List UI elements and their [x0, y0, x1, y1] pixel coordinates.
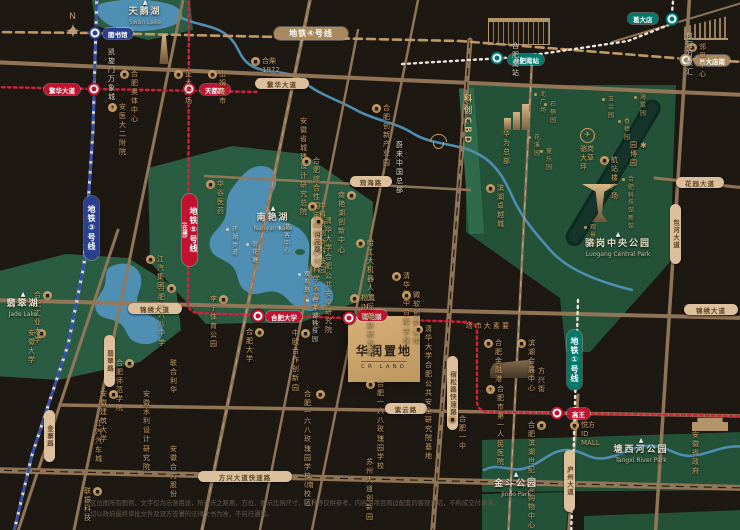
- poi-label: ▪山姆超市: [208, 70, 226, 106]
- poi-text: 清华大学 合肥公共安全研究院: [325, 217, 332, 335]
- location-map: 华润置地 CR LAND N ✦ 科创CBD 繁华大道观海路锦绣大道锦绣大道紫云…: [0, 0, 740, 530]
- poi-icon: ▪: [486, 184, 495, 193]
- poi-label: 安徽省政府: [692, 431, 699, 476]
- poi-icon: ▪: [109, 390, 118, 399]
- poi-icon: ▪: [414, 325, 423, 334]
- poi-text: 山姆超市: [219, 70, 226, 106]
- poi-icon: ▪: [392, 272, 401, 281]
- poi-icon: +: [108, 103, 117, 112]
- metro-line-badge: 地铁③号线: [84, 196, 99, 260]
- station-name-badge: 繁华大道: [44, 84, 80, 95]
- poi-label: 华为总部: [503, 130, 510, 166]
- park-name: ▲翡翠湖Jade Lake: [0, 292, 58, 318]
- poi-text: 合肥奥体中心: [131, 70, 138, 125]
- poi-text: 梅冲湖科技园: [312, 297, 318, 344]
- poi-text: 合肥南站: [512, 42, 519, 78]
- crland-latin: CR LAND: [361, 361, 407, 370]
- poi-icon: ✈: [580, 128, 595, 143]
- poi-icon: ▪: [570, 421, 579, 430]
- poi-label: 荷花塘: [246, 241, 258, 264]
- park-name-cn: 天鹅湖: [128, 6, 161, 19]
- poi-text: 江汽集团: [157, 255, 164, 291]
- poi-text: 滨湖卓越城: [497, 184, 504, 229]
- poi-text: 要素大市场: [464, 322, 509, 330]
- poi-label: 海棠园: [634, 94, 646, 117]
- poi-icon: ▪: [251, 57, 260, 66]
- poi-text: 李宁体育公园: [210, 295, 217, 350]
- poi-label: 观鸟岛: [298, 271, 310, 294]
- poi-label: ▪合柴1972: [251, 57, 280, 75]
- road-label-text: 方兴大道快速路: [219, 472, 272, 482]
- poi-text: 海棠园: [640, 94, 646, 117]
- poi-text: 江汽汽车城: [95, 419, 102, 464]
- poi-icon: ▪: [146, 255, 155, 264]
- road-label-text: 宿松路快速路: [448, 371, 458, 416]
- poi-text: 联合利华: [170, 359, 177, 395]
- road-label-text: 翡翠路: [105, 350, 115, 373]
- park-name: ▲骆岗中央公园Luogang Central Park: [583, 232, 653, 258]
- station-name-badge: 高王: [567, 408, 590, 419]
- poi-text: 安徽省政府: [692, 431, 699, 476]
- poi-icon: ▪: [372, 104, 381, 113]
- road-label: 花园大道: [676, 177, 724, 188]
- poi-icon: ▪: [219, 295, 228, 304]
- hefei-south-railway-station-illustration: [488, 18, 550, 45]
- poi-icon: ▪: [125, 359, 134, 368]
- poi-text: 合肥创新产业园: [383, 104, 390, 168]
- park-name-cn: 塘西河公园: [613, 444, 668, 457]
- poi-label: 玉兰园: [602, 96, 614, 119]
- poi-label: 方兴街: [538, 367, 545, 394]
- road-label: 观海路: [350, 176, 392, 187]
- poi-text: 中欧合作创新园: [292, 329, 299, 393]
- huawei-hq-building-icon: [504, 104, 529, 130]
- poi-label: ▪清华大学 合肥公共安全 研究院基地: [414, 325, 432, 461]
- poi-text: 园博园: [630, 141, 637, 168]
- poi-text: 玉兰园: [608, 96, 614, 119]
- station-name-text: 繁华大道: [49, 85, 75, 95]
- poi-label: ▪滨湖会展中心: [517, 339, 535, 394]
- park-name-en: Swan Lake: [129, 19, 161, 26]
- poi-label: ▪滨湖卓越城: [486, 184, 504, 229]
- metro-line-name: 地铁①号线: [569, 337, 580, 383]
- poi-label: 要素大市场: [464, 322, 509, 330]
- poi-icon: ▪: [308, 202, 317, 211]
- poi-text: 骆岗大草坪: [580, 145, 595, 172]
- poi-icon: ▪: [302, 157, 311, 166]
- poi-label: 南艳湖创新中心▪: [338, 191, 356, 255]
- poi-label: ▪华谷医药: [206, 180, 224, 216]
- poi-text: 荷花塘: [252, 241, 258, 264]
- disclaimer-line-2: 一切以政府最终审批文件及双方签署的法律文书为准，不另行通知。: [84, 510, 694, 521]
- poi-icon: ▪: [537, 421, 546, 430]
- poi-text: 香樟园: [624, 118, 630, 141]
- park-name-en: Nanyan Lake: [254, 225, 293, 232]
- poi-text: 悦方ID MALL: [581, 421, 600, 448]
- station-name-badge: 合肥大学: [266, 311, 302, 322]
- nanyan-islet: [256, 294, 268, 302]
- park-name-en: Jindo Park: [501, 491, 531, 498]
- metro-line-name: 地铁④号线: [289, 28, 333, 39]
- poi-icon: ▪: [206, 180, 215, 189]
- road-label: 金寨路: [44, 410, 55, 462]
- poi-label: 安徽合力股份: [170, 445, 177, 500]
- poi-label: 江汽汽车城: [95, 419, 102, 464]
- park-name-en: Luogang Central Park: [586, 251, 650, 258]
- poi-text: 合肥一六八玫瑰园学校: [377, 380, 384, 471]
- poi-text: 观鸟岛: [304, 271, 310, 294]
- poi-text: 南艳湖创新中心: [338, 191, 345, 255]
- road-label-text: 花园大道: [685, 178, 715, 188]
- poi-label: ▪合肥 一中: [448, 415, 466, 451]
- metro-station-icon: [551, 407, 564, 420]
- poi-label: 安徽建筑大学▪: [100, 390, 118, 445]
- poi-text: 童乐园: [546, 148, 552, 171]
- station-name-text: 葛大店: [633, 14, 653, 24]
- poi-icon: ▪: [448, 415, 457, 424]
- poi-text: 松岚IN PARK!: [361, 294, 382, 321]
- road-label: 方兴大道快速路: [198, 471, 292, 482]
- poi-label: 园博园✱: [630, 141, 648, 168]
- poi-label: 联合利华: [170, 359, 177, 395]
- poi-label: ▪悦方ID MALL: [570, 421, 600, 448]
- poi-label: 蔚来中国总部: [396, 141, 403, 196]
- nio-logo-icon: [430, 134, 445, 149]
- poi-text: 正大广场: [185, 70, 192, 106]
- station-name-text: 高王: [572, 409, 585, 419]
- poi-label: 香樟园: [618, 118, 630, 141]
- poi-icon: ▪: [208, 70, 217, 79]
- poi-text: 滨湖会展中心: [528, 339, 535, 394]
- poi-icon: ▪: [350, 294, 359, 303]
- metro-line-status: (在建): [180, 222, 188, 238]
- road-label-text: 庐州大道: [565, 466, 575, 496]
- poi-text: 合肥金融港: [495, 339, 502, 384]
- poi-label: 合肥南站: [512, 42, 519, 78]
- park-name-cn: 翡翠湖: [6, 298, 39, 311]
- metro-line-badge: 地铁①号线: [567, 330, 582, 390]
- metro-line-name: 地铁③号线: [86, 205, 97, 251]
- metro-line-badge: 地铁⑤号线(在建): [182, 194, 197, 266]
- poi-icon: ▪: [93, 487, 102, 496]
- road-label-text: 金寨路: [45, 425, 55, 448]
- poi-label: 环湖步道: [226, 226, 238, 257]
- poi-icon: ▪: [356, 239, 365, 248]
- poi-text: 合肥一六八中学: [158, 284, 165, 348]
- poi-text: 合肥市 第一人民医院: [497, 385, 504, 467]
- poi-label: 童乐园: [540, 148, 552, 171]
- poi-label: 合肥一六八玫瑰园学校 (南校区)▪: [304, 390, 325, 508]
- poi-icon: ▪: [402, 291, 411, 300]
- poi-label: ▪松岚IN PARK!: [350, 294, 382, 321]
- compass: N ✦: [58, 12, 88, 40]
- road-label-text: 锦绣大道: [696, 305, 726, 315]
- station-name-badge: 葛大店: [628, 13, 658, 24]
- poi-label: ▪正大广场: [174, 70, 192, 106]
- poi-label: 合肥科技馆新馆: [622, 176, 634, 231]
- poi-label: ▪合肥创新产业园: [372, 104, 390, 168]
- poi-text: 包河万象汇: [686, 32, 693, 77]
- poi-icon: ▪: [174, 70, 183, 79]
- metro-station-icon: [252, 310, 265, 323]
- poi-label: 凯旋门 万象城: [108, 48, 115, 103]
- poi-label: 梅冲湖科技园: [306, 297, 318, 344]
- poi-label: 合肥大学▪: [246, 328, 264, 364]
- station-name-text: 图书馆: [108, 29, 128, 39]
- compass-needle-icon: ✦: [58, 22, 88, 40]
- poi-icon: ▪: [167, 284, 176, 293]
- park-name-cn: 南艳湖: [256, 212, 289, 225]
- poi-icon: ✱: [639, 141, 648, 150]
- poi-icon: ▪: [517, 339, 526, 348]
- park-name: ▲南艳湖Nanyan Lake: [238, 206, 308, 232]
- poi-label: ▪江汽集团: [146, 255, 164, 291]
- poi-text: 合柴1972: [262, 57, 280, 75]
- anhui-government-building-icon: [692, 416, 728, 431]
- poi-text: 合肥大学: [246, 328, 253, 364]
- metro-station-icon: [88, 83, 101, 96]
- metro-line-name: 地铁⑤号线: [188, 207, 199, 253]
- poi-text: 航站楼广场: [611, 156, 618, 201]
- kechuang-cbd-label: 科创CBD: [461, 94, 473, 146]
- poi-icon: ▪: [316, 390, 325, 399]
- poi-label: +安医大二附院: [108, 103, 126, 158]
- poi-label: 花溪园: [528, 134, 540, 157]
- park-name-cn: 金斗公园: [494, 478, 538, 491]
- road-label: 翡翠路: [104, 335, 115, 387]
- station-name-badge: 图书馆: [103, 28, 133, 39]
- poi-icon: ▪: [484, 339, 493, 348]
- poi-label: 安徽水利设计研究院: [143, 390, 150, 472]
- poi-text: 华为总部: [503, 130, 510, 166]
- poi-text: 合肥 一中: [459, 415, 466, 451]
- park-name: ▲塘西河公园Tangxi River Park: [606, 438, 676, 464]
- poi-text: 合肥一六八玫瑰园学校 (南校区): [304, 390, 314, 508]
- poi-icon: ▪: [314, 217, 323, 226]
- poi-icon: ▪: [366, 380, 375, 389]
- park-name-en: Jade Lake: [9, 311, 38, 318]
- poi-label: ▪合肥金融港: [484, 339, 502, 384]
- park-name: ▲天鹅湖Swan Lake: [110, 0, 180, 26]
- station-name-text: 合肥大学: [271, 312, 297, 322]
- poi-label: +合肥市 第一人民医院: [486, 385, 504, 467]
- disclaimer-line-1: 本区位图所有图例、文字仅为示意用途，所表示之距离、方位、图示比例尺寸、边界等仅供…: [84, 499, 694, 510]
- poi-label: 石楠园: [544, 101, 556, 124]
- road-label: 繁华大道: [255, 78, 309, 89]
- metro-line-badge: 地铁④号线: [274, 27, 348, 40]
- poi-text: 安徽合力股份: [170, 445, 177, 500]
- poi-text: 邻里中心: [699, 43, 706, 79]
- disclaimer: 本区位图所有图例、文字仅为示意用途，所表示之距离、方位、图示比例尺寸、边界等仅供…: [84, 499, 694, 520]
- metro-station-icon: [666, 13, 679, 26]
- park-name-en: Tangxi River Park: [615, 457, 667, 464]
- poi-icon: ▪: [600, 156, 609, 165]
- poi-icon: ▪: [255, 328, 264, 337]
- road-label-text: 繁华大道: [267, 79, 297, 89]
- poi-icon: ▪: [120, 70, 129, 79]
- poi-text: 清华大学 合肥公共安全 研究院基地: [425, 325, 432, 461]
- poi-text: 合肥科技馆新馆: [628, 176, 634, 231]
- poi-label: 李宁体育公园▪: [210, 295, 228, 350]
- poi-icon: +: [486, 385, 495, 394]
- poi-label: ✈骆岗大草坪: [580, 128, 595, 172]
- poi-text: 安医大二附院: [119, 103, 126, 158]
- poi-label: 合肥师范学院▪: [116, 359, 134, 414]
- poi-text: 华谷医药: [217, 180, 224, 216]
- road-label-text: 观海路: [360, 177, 383, 187]
- park-name-cn: 骆岗中央公园: [585, 238, 651, 251]
- poi-text: 方兴街: [538, 367, 545, 394]
- poi-label: 包河万象汇: [686, 32, 693, 77]
- poi-label: ▪航站楼广场: [600, 156, 618, 201]
- road-label: 包河大道: [670, 204, 681, 264]
- poi-icon: ▪: [347, 191, 356, 200]
- metro-station-icon: [89, 27, 102, 40]
- park-name: ▲金斗公园Jindo Park: [481, 472, 551, 498]
- road-label: 锦绣大道: [684, 304, 738, 315]
- road-label-text: 包河大道: [671, 219, 681, 249]
- poi-text: 凯旋门 万象城: [108, 48, 115, 103]
- metro-station-icon: [491, 52, 504, 65]
- poi-text: 安徽水利设计研究院: [143, 390, 150, 472]
- poi-text: 石楠园: [550, 101, 556, 124]
- poi-label: 合肥一六八中学▪: [158, 284, 176, 348]
- poi-text: 蔚来中国总部: [396, 141, 403, 196]
